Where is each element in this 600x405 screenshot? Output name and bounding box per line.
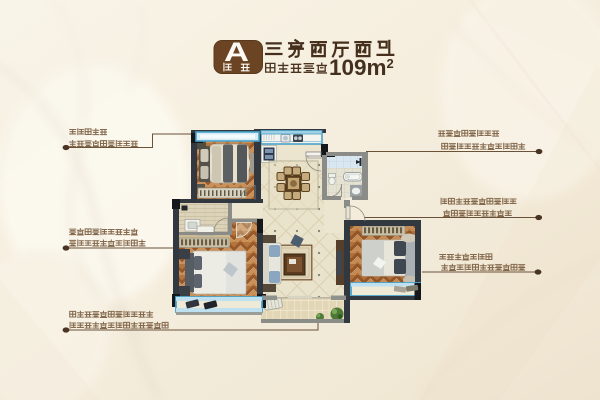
svg-text:A: A (224, 36, 249, 66)
svg-text:109m2: 109m2 (329, 55, 394, 80)
